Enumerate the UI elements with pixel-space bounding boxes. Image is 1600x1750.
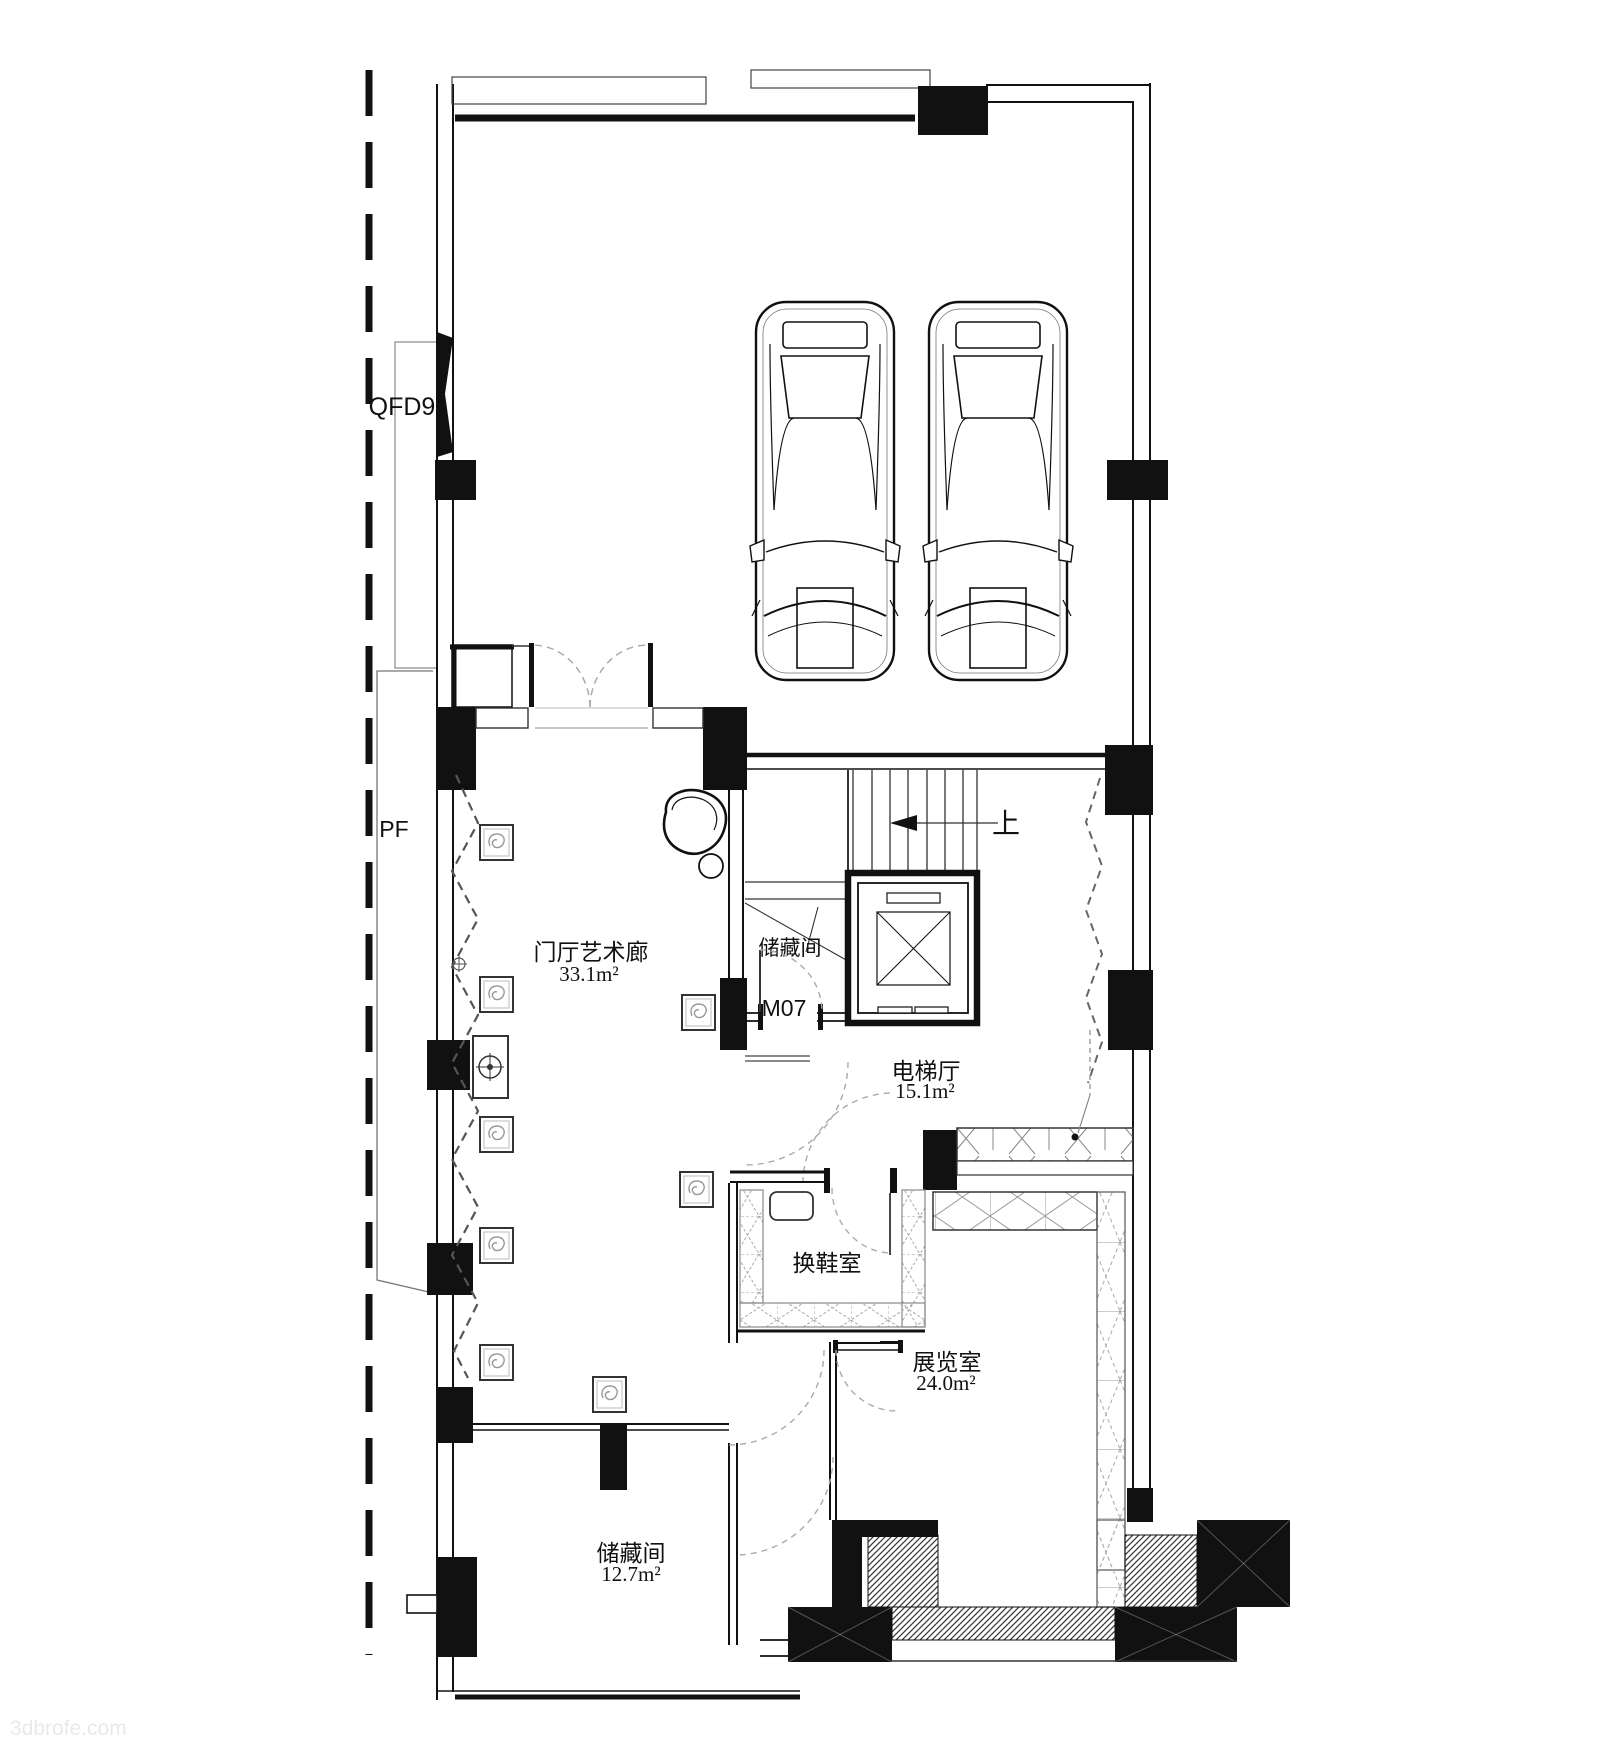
- wall-tab: [407, 1595, 437, 1613]
- corridor-door-swings: [745, 1062, 893, 1183]
- column: [435, 460, 476, 500]
- column: [923, 1130, 957, 1190]
- floor-plan-drawing: QFD9 PF: [0, 0, 1600, 1750]
- floor-plan-page: QFD9 PF: [0, 0, 1600, 1750]
- garage-area: [750, 302, 1073, 680]
- column: [918, 86, 988, 135]
- stair-up-label: 上: [992, 809, 1020, 840]
- shoe-room: [730, 1168, 925, 1331]
- art-display-square: [480, 1117, 513, 1152]
- under-stair-storage-label: 储藏间: [759, 936, 822, 960]
- entry-vestibule: [450, 645, 703, 728]
- art-display-square: [682, 995, 715, 1030]
- art-display-square: [480, 1345, 513, 1380]
- column: [1105, 745, 1153, 815]
- shoe-room-name: 换鞋室: [793, 1251, 862, 1276]
- column: [1108, 970, 1153, 1050]
- watermark: 3dbrofe.com: [10, 1717, 127, 1740]
- elevator: [848, 873, 977, 1023]
- art-display-square: [593, 1377, 626, 1412]
- column: [1107, 460, 1168, 500]
- exhibition-door: [833, 1340, 903, 1411]
- column: [437, 1557, 477, 1657]
- elevator-hall-area: 15.1m²: [895, 1079, 954, 1103]
- stair-direction-arrow: [890, 815, 998, 831]
- pf-boundary-line: [377, 671, 433, 1293]
- car-1: [750, 302, 900, 680]
- column: [427, 1243, 473, 1295]
- storage-area: 12.7m²: [601, 1562, 660, 1586]
- shoe-cabinet: [770, 1192, 813, 1220]
- column: [832, 1520, 862, 1607]
- car-2: [923, 302, 1073, 680]
- elevator-hall-feature-wall: [957, 1030, 1133, 1175]
- pf-label: PF: [379, 816, 408, 842]
- exhibition-area: 24.0m²: [916, 1371, 975, 1395]
- elevator-hall-insulation-zigzag: [1086, 778, 1102, 1083]
- hall-area: 33.1m²: [559, 962, 618, 986]
- window-wedge: [437, 332, 453, 457]
- column: [720, 978, 747, 1050]
- column: [600, 1423, 627, 1490]
- hall-sculpture: [664, 790, 726, 878]
- qfd9-label: QFD9: [369, 393, 436, 421]
- art-display-square: [480, 1228, 513, 1263]
- art-display-square: [480, 825, 513, 860]
- column: [703, 707, 747, 790]
- m07-label: M07: [762, 995, 807, 1021]
- column: [1127, 1488, 1153, 1522]
- art-display-square: [680, 1172, 713, 1207]
- qfd9-boundary-box: [395, 342, 437, 668]
- crosshair-display-box: [473, 1036, 508, 1098]
- hall-art-squares: [480, 825, 715, 1412]
- entry-double-door: [529, 643, 653, 707]
- column: [437, 1387, 473, 1443]
- art-display-square: [480, 977, 513, 1012]
- entry-porch: [788, 1520, 1290, 1662]
